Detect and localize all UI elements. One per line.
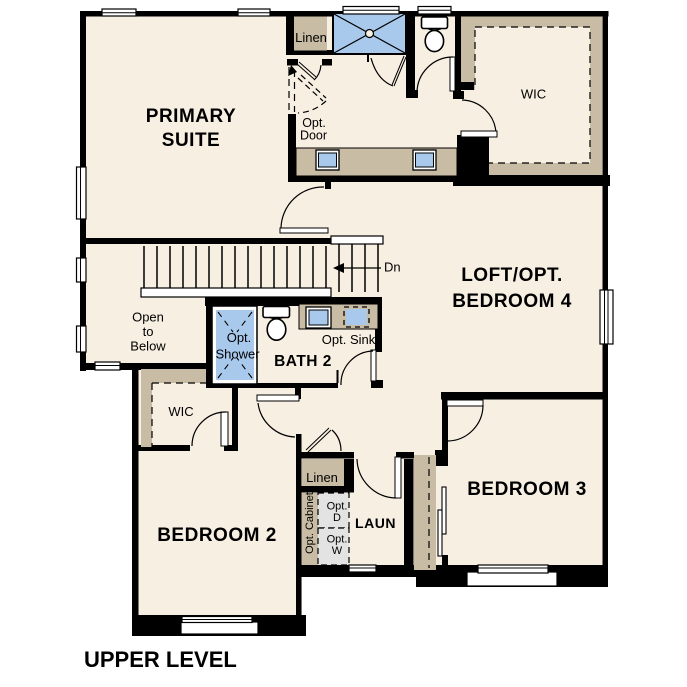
svg-text:Linen: Linen [295,30,327,45]
svg-text:BEDROOM 3: BEDROOM 3 [467,479,587,500]
svg-text:Door: Door [300,129,327,143]
svg-text:Shower: Shower [215,347,260,362]
svg-text:Opt.: Opt. [327,534,348,546]
svg-text:Below: Below [130,339,166,354]
svg-text:PRIMARY: PRIMARY [146,106,236,127]
svg-text:UPPER LEVEL: UPPER LEVEL [84,647,237,672]
svg-text:D: D [333,512,341,524]
svg-text:SUITE: SUITE [162,130,220,151]
svg-text:Opt.: Opt. [327,501,348,513]
svg-text:Linen: Linen [306,470,338,485]
svg-text:WIC: WIC [168,404,193,419]
svg-text:to: to [143,324,154,339]
svg-text:LAUN: LAUN [355,515,396,531]
svg-text:BEDROOM 4: BEDROOM 4 [452,291,572,312]
svg-text:Opt.: Opt. [227,330,252,345]
svg-text:Open: Open [132,310,164,325]
svg-text:LOFT/OPT.: LOFT/OPT. [461,265,563,286]
svg-text:WIC: WIC [521,87,546,102]
svg-text:BEDROOM 2: BEDROOM 2 [157,525,277,546]
svg-text:Opt. Cabinet: Opt. Cabinet [304,492,316,554]
svg-text:Dn: Dn [384,260,401,275]
svg-text:BATH 2: BATH 2 [274,353,332,370]
svg-text:Opt. Sink: Opt. Sink [322,332,376,347]
svg-text:W: W [332,545,343,557]
